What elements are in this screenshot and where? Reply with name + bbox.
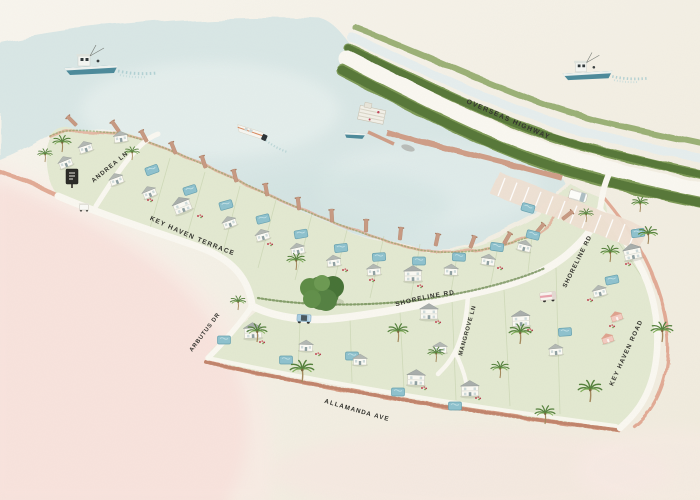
illustrated-map: ANDREA LN KEY HAVEN TERRACE SHORELINE RD…: [0, 0, 700, 500]
paper-grain: [0, 0, 700, 500]
map-canvas: ANDREA LN KEY HAVEN TERRACE SHORELINE RD…: [0, 0, 700, 500]
